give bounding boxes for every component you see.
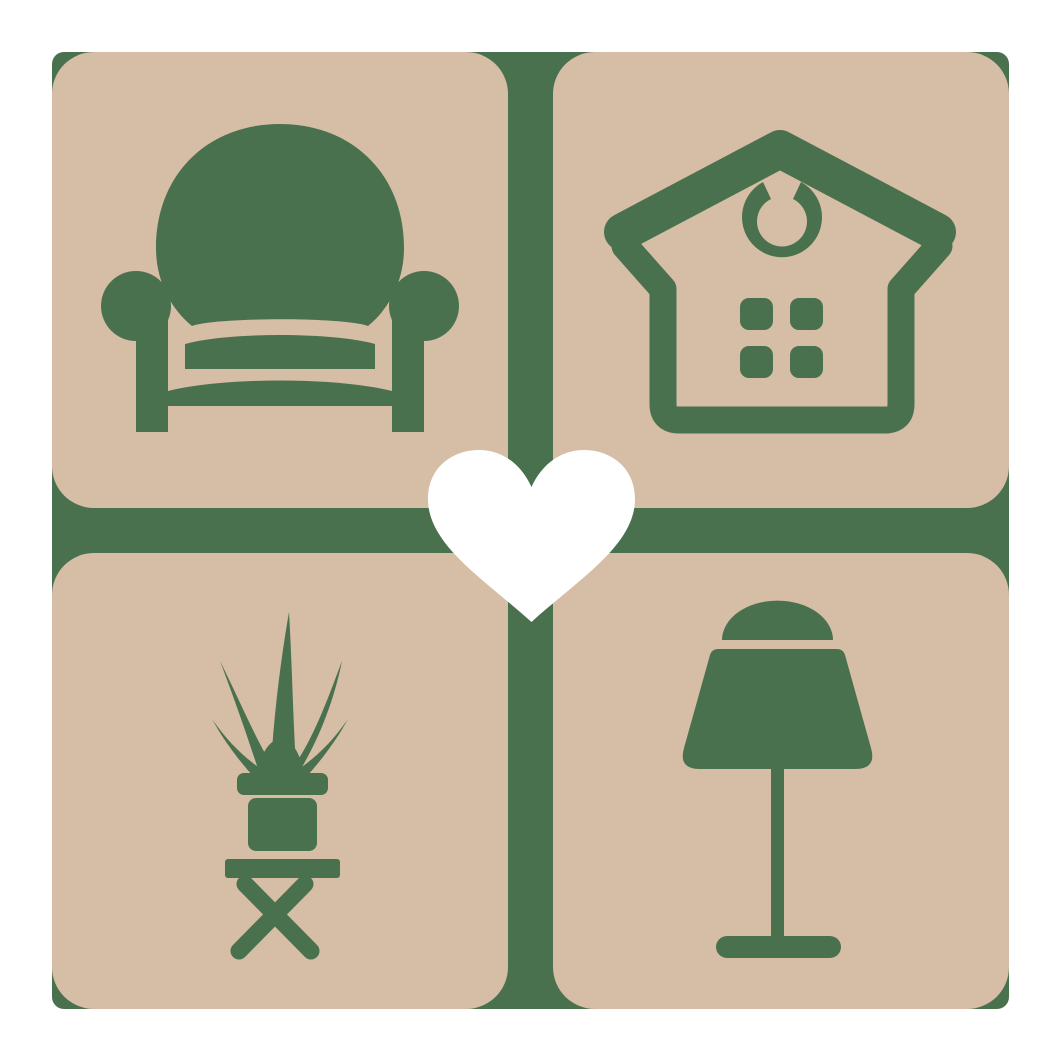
lamp-stem <box>771 769 784 941</box>
lamp-shade <box>683 649 873 769</box>
house-window-pane <box>790 346 823 378</box>
house-icon <box>553 52 1009 508</box>
armchair-backrest <box>156 124 404 326</box>
stool-top <box>225 859 340 878</box>
logo <box>0 0 1063 1063</box>
heart-icon <box>422 446 641 624</box>
armchair-rail <box>168 381 392 407</box>
house-ornament <box>742 182 822 257</box>
house-window-pane <box>740 346 773 378</box>
tile-armchair <box>52 52 508 508</box>
house-window-pane <box>790 298 823 330</box>
plant-pot-rim <box>237 773 328 795</box>
house-roof <box>623 149 937 232</box>
lamp-base <box>716 936 841 958</box>
plant-clump <box>255 737 305 777</box>
armchair-icon <box>52 52 508 508</box>
armchair-right-leg <box>392 306 424 432</box>
plant-pot-body <box>248 798 317 851</box>
armchair-cushion <box>185 335 375 369</box>
house-window-pane <box>740 298 773 330</box>
tile-house <box>553 52 1009 508</box>
plant-leaf-inner-right <box>292 661 342 769</box>
house-body <box>625 246 939 420</box>
lamp-cap <box>722 601 833 640</box>
armchair-left-leg <box>136 306 168 432</box>
heart-shape <box>428 450 635 622</box>
